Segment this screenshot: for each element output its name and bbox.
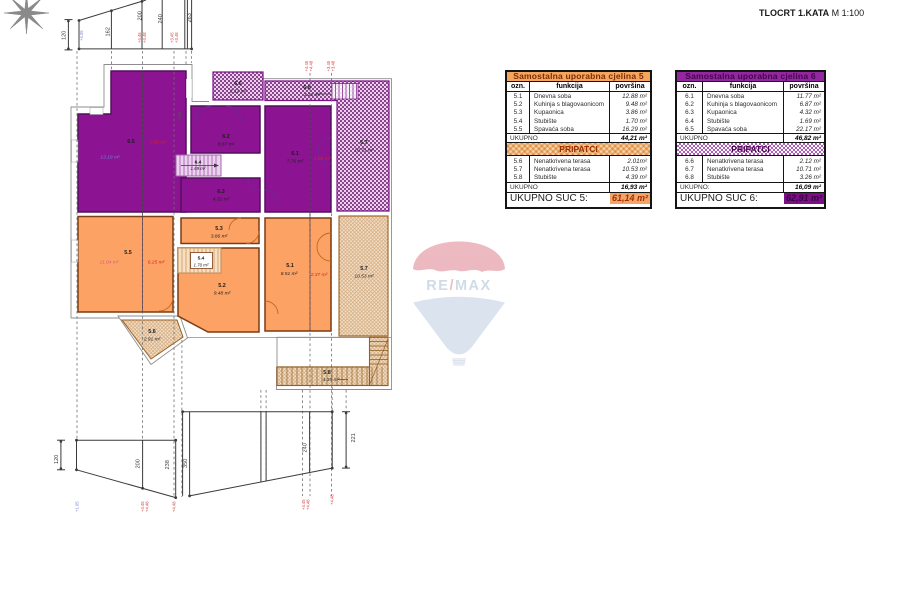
svg-text:1.38: 1.38: [177, 111, 182, 120]
svg-text:+4.48: +4.48: [306, 499, 311, 510]
svg-text:1.69 m²: 1.69 m²: [191, 166, 206, 171]
svg-text:10.53 m²: 10.53 m²: [354, 274, 374, 280]
svg-text:2.91 m²: 2.91 m²: [143, 337, 161, 343]
svg-text:5.6: 5.6: [148, 329, 156, 335]
svg-text:3.86 m²: 3.86 m²: [211, 234, 228, 240]
svg-text:+4.05: +4.05: [79, 30, 84, 41]
svg-text:200: 200: [138, 11, 144, 20]
svg-text:221: 221: [351, 433, 357, 442]
svg-text:+4.48: +4.48: [142, 32, 147, 43]
svg-text:RE/MAX: RE/MAX: [426, 278, 491, 294]
svg-text:5.8: 5.8: [323, 370, 331, 376]
svg-text:240: 240: [303, 443, 309, 452]
svg-text:+4.48: +4.48: [145, 501, 150, 512]
svg-text:4.32 m²: 4.32 m²: [213, 197, 230, 203]
svg-text:162: 162: [106, 27, 112, 36]
svg-text:5.2: 5.2: [218, 283, 226, 289]
svg-text:+1.05: +1.05: [75, 501, 80, 512]
svg-text:2.37 m²: 2.37 m²: [310, 272, 328, 278]
svg-text:240: 240: [158, 14, 164, 23]
svg-text:7.68 m²: 7.68 m²: [150, 140, 167, 146]
svg-text:6.6: 6.6: [234, 81, 242, 87]
svg-text:6.3: 6.3: [217, 189, 225, 195]
svg-text:120: 120: [54, 455, 60, 464]
svg-text:5.7: 5.7: [360, 266, 368, 272]
svg-text:5.4: 5.4: [198, 256, 205, 262]
svg-text:6.7: 6.7: [360, 140, 368, 146]
svg-text:6.5: 6.5: [127, 139, 135, 145]
svg-text:6.2: 6.2: [222, 134, 230, 140]
svg-text:238: 238: [165, 460, 171, 469]
svg-text:5.5: 5.5: [124, 250, 132, 256]
svg-text:+3.48: +3.48: [331, 60, 336, 71]
svg-text:263: 263: [187, 13, 193, 22]
svg-text:+4.48: +4.48: [309, 60, 314, 71]
svg-text:5.1: 5.1: [286, 263, 294, 269]
svg-text:5.3: 5.3: [215, 226, 223, 232]
svg-text:+4.48: +4.48: [330, 494, 335, 505]
svg-text:2.12 m²: 2.12 m²: [229, 89, 247, 95]
svg-text:6.4: 6.4: [195, 160, 202, 166]
svg-text:+4.48: +4.48: [172, 501, 177, 512]
svg-text:6.1: 6.1: [291, 151, 299, 157]
svg-text:350: 350: [183, 459, 189, 468]
svg-text:3.26 m²: 3.26 m²: [304, 92, 321, 98]
svg-text:+3.48: +3.48: [174, 32, 179, 43]
svg-text:9.48 m²: 9.48 m²: [214, 291, 231, 297]
svg-text:10.71 m²: 10.71 m²: [354, 148, 374, 154]
svg-text:200: 200: [136, 459, 142, 468]
svg-text:120: 120: [62, 31, 68, 40]
svg-text:13.19 m²: 13.19 m²: [100, 155, 120, 161]
svg-text:11.04 m²: 11.04 m²: [100, 260, 119, 266]
svg-text:1.70 m²: 1.70 m²: [194, 263, 209, 268]
svg-text:8.51 m²: 8.51 m²: [281, 271, 298, 277]
svg-text:8.87 m²: 8.87 m²: [218, 142, 235, 148]
svg-text:7.76 m²: 7.76 m²: [287, 159, 304, 165]
svg-text:6.25 m²: 6.25 m²: [148, 260, 165, 266]
svg-text:1.05 m²: 1.05 m²: [314, 156, 331, 162]
